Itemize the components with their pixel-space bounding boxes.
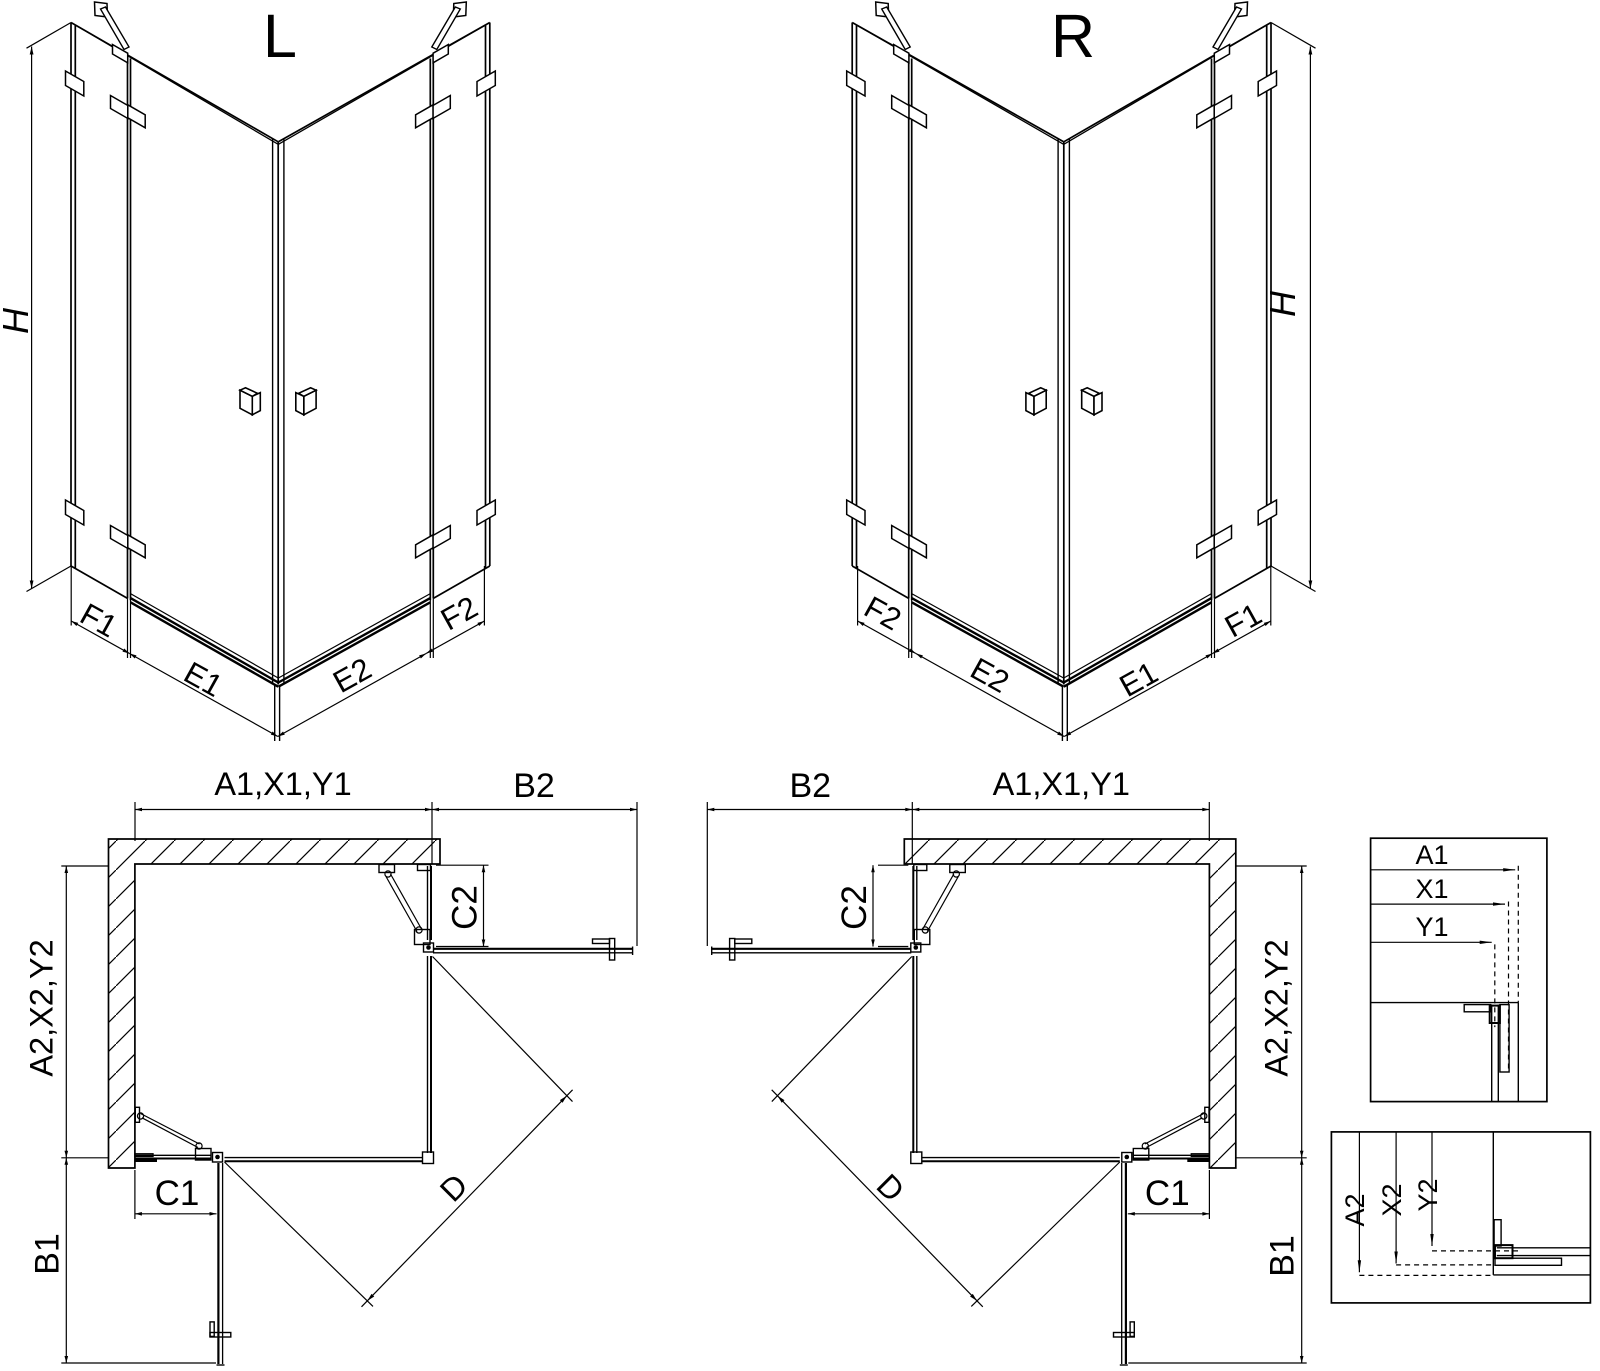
svg-text:X1: X1 [1415,874,1448,904]
svg-text:Y2: Y2 [1413,1178,1443,1211]
svg-text:Y1: Y1 [1415,912,1448,942]
svg-text:H: H [1262,290,1303,317]
svg-text:L: L [263,2,297,70]
svg-text:A2: A2 [1340,1193,1370,1226]
svg-text:B1: B1 [1264,1235,1302,1277]
svg-text:C1: C1 [1145,1174,1190,1213]
svg-text:H: H [0,307,36,334]
svg-text:C1: C1 [155,1174,200,1213]
svg-text:B2: B2 [513,767,555,805]
svg-text:A2,X2,Y2: A2,X2,Y2 [1259,939,1295,1076]
svg-text:A1,X1,Y1: A1,X1,Y1 [993,766,1130,802]
svg-text:X2: X2 [1377,1183,1407,1216]
svg-text:C2: C2 [835,885,874,930]
svg-text:B1: B1 [28,1233,66,1275]
svg-text:R: R [1051,2,1095,70]
svg-text:C2: C2 [446,885,485,930]
svg-text:A2,X2,Y2: A2,X2,Y2 [23,939,59,1076]
svg-text:B2: B2 [790,767,832,805]
svg-text:A1,X1,Y1: A1,X1,Y1 [214,766,351,802]
svg-text:A1: A1 [1415,840,1448,870]
